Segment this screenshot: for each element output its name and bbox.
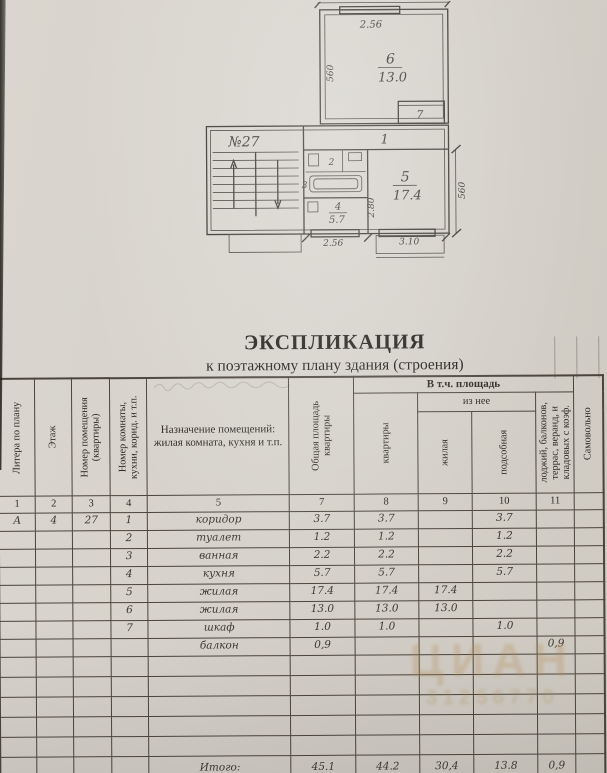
- col-header-floor: Этаж: [34, 378, 72, 495]
- plan-apartment-label: №27: [227, 134, 259, 150]
- plan-dim-top: 2.56: [359, 20, 383, 31]
- col-header-purpose: Назначение помещений: жилая комната, кух…: [147, 377, 289, 495]
- totals-apartment-area: 44.2: [356, 754, 420, 773]
- col-header-apartment-number: Номер помещения (квартиры): [72, 378, 110, 495]
- room-6-walls: [320, 6, 449, 124]
- title-block: ЭКСПЛИКАЦИЯ к поэтажному плану здания (с…: [140, 329, 530, 376]
- interior-walls: [304, 149, 450, 234]
- scanned-document-page: №27 1 2 3 6 13.0 7 5 17.4 4 5.7 2.56 560…: [0, 0, 607, 773]
- totals-total-area: 45.1: [291, 755, 356, 773]
- plan-dim-room6-left: 560: [326, 64, 336, 82]
- totals-balcony-area: 0,9: [538, 753, 576, 773]
- totals-row: Итого: 45.1 44.2 30,4 13.8 0,9: [0, 753, 605, 773]
- group-header-of-it: из нее: [417, 392, 535, 412]
- page-title: ЭКСПЛИКАЦИЯ: [140, 329, 530, 356]
- col-header-unauthorized: Самовольно: [573, 375, 603, 492]
- col-header-litera: Литера по плану: [0, 379, 35, 496]
- plan-room4-area: 5.7: [329, 215, 346, 226]
- plan-dim-kitchen-height: 2.80: [367, 197, 377, 218]
- plan-room6-area: 13.0: [378, 70, 407, 85]
- plan-room3-number: 3: [302, 181, 308, 191]
- col-header-auxiliary-area: подсобная: [472, 411, 536, 493]
- col-header-loggia-balcony: лоджий, балконов, террас, веранд, и клад…: [536, 391, 575, 492]
- explication-table: Литера по плану Этаж Номер помещения (кв…: [0, 374, 606, 773]
- totals-auxiliary-area: 13.8: [474, 754, 538, 773]
- plan-dim-room5-bottom: 3.10: [399, 237, 419, 247]
- plan-room1-number: 1: [380, 132, 388, 147]
- plan-room7-number: 7: [416, 108, 423, 121]
- plan-room5-number: 5: [401, 169, 410, 185]
- plan-room2-number: 2: [328, 158, 335, 168]
- plan-room4-number: 4: [334, 202, 341, 213]
- plan-room6-number: 6: [386, 51, 395, 67]
- plan-dim-room5-right: 560: [458, 182, 468, 200]
- adjacent-table-edge-artifact: [547, 336, 607, 378]
- totals-label: Итого:: [149, 755, 291, 773]
- col-header-living-area: жилая: [418, 411, 473, 493]
- page-subtitle: к поэтажному плану здания (строения): [140, 356, 530, 376]
- totals-living-area: 30,4: [420, 754, 474, 773]
- plan-dim-kitchen-bottom: 2.56: [322, 239, 343, 249]
- floor-plan-drawing: №27 1 2 3 6 13.0 7 5 17.4 4 5.7 2.56 560…: [170, 1, 477, 265]
- col-header-room-number: Номер комнаты, кухни, корид. и т.п.: [109, 378, 147, 495]
- plan-room5-area: 17.4: [393, 188, 422, 203]
- col-header-total-area: Общая площадь квартиры: [289, 377, 355, 494]
- col-header-apartment-area: квартиры: [354, 392, 419, 493]
- group-header-including-area: В т.ч. площадь: [353, 375, 573, 392]
